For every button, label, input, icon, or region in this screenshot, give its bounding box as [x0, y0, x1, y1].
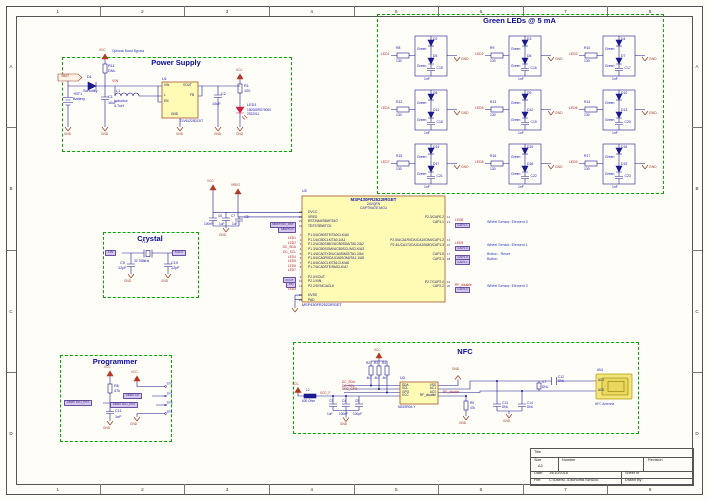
value-label: Green — [417, 119, 426, 122]
value-label: 12pF — [118, 267, 127, 271]
vcc-power-label: VCC — [104, 366, 111, 369]
pin-name: P2.3/CAP0.2 — [368, 215, 444, 219]
value-label: 600 Ohm — [302, 400, 315, 403]
revision-label: Revision — [648, 459, 663, 463]
divider — [531, 457, 693, 458]
designator: R2 — [366, 362, 370, 365]
mcu-designator: U2 — [302, 190, 307, 194]
gnd-label: GND — [649, 166, 657, 169]
pin-number: 11 — [296, 284, 305, 288]
vcc-power-label: VCC — [374, 349, 381, 352]
led-cell: LED9 R17 130 D16 Green D19 Green C23 1nF… — [569, 139, 663, 193]
mcu-pin-row: CAP2.2 20 CAP2.2 Wheel Sensor: Element 2 — [368, 284, 588, 289]
file-label: File: — [534, 479, 541, 483]
value-label: 10uF — [212, 103, 221, 107]
value-label: 130 — [396, 168, 402, 171]
value-label: 130 — [396, 114, 402, 117]
value-label: Green — [417, 173, 426, 176]
designator: D17 — [433, 163, 439, 166]
designator: C1 — [108, 96, 113, 100]
value-label: 1nF — [612, 78, 618, 81]
value-label: 130 — [490, 168, 496, 171]
pin-number: 7 — [296, 261, 305, 265]
net-label: LED2 — [475, 53, 483, 56]
designator: R1 — [244, 85, 249, 89]
pin-number: 18 — [444, 257, 453, 261]
designator: LED1 — [247, 104, 257, 108]
antenna-label: NFC Antenna — [595, 403, 614, 406]
date-label: Date: — [534, 472, 543, 476]
gnd-label: GND — [459, 422, 466, 425]
pin-name: P1.7/UCA0STE/SMCLK/A7 — [305, 265, 348, 269]
value-label: 100nF — [339, 413, 348, 416]
designator: R11 — [108, 65, 115, 69]
pin-number: 15 — [444, 243, 453, 247]
pin-comment: Wheel Sensor: Element 0 — [483, 220, 528, 224]
green-leds-title: Green LEDs @ 5 mA — [377, 17, 662, 25]
value-label: 47k — [470, 407, 475, 410]
pin-name: AC0 — [598, 389, 604, 392]
value-label: 1nF — [612, 186, 618, 189]
pin-name: DVCC — [305, 210, 317, 214]
value-label: 130 — [490, 60, 496, 63]
gnd-label: GND — [461, 58, 469, 61]
value-label: 4.7uH — [114, 105, 124, 109]
value-label: Green — [417, 156, 426, 159]
net-label: RF_disable — [443, 391, 459, 394]
gnd-label: GND — [176, 133, 183, 136]
vbat-port-label: VBAT — [61, 75, 69, 78]
designator: AN1 — [597, 369, 603, 372]
value-label: 130 — [584, 168, 590, 171]
designator: D16 — [621, 146, 627, 149]
pin-name: P1.1/UCB0CLK/TA0.1/A1 — [305, 238, 345, 242]
value-label: Green — [511, 119, 520, 122]
designator: D9 — [527, 92, 531, 95]
designator: C20 — [625, 121, 631, 124]
pin-number: 5 — [296, 252, 305, 256]
designator: D5 — [433, 55, 437, 58]
value-label: Green — [417, 48, 426, 51]
number-label: Number — [562, 459, 576, 463]
title-label: Title — [534, 451, 541, 455]
designator: D19 — [621, 163, 627, 166]
pin-number: 1 — [296, 233, 305, 237]
size-label: Size — [534, 459, 541, 463]
value-label: 4k7 — [383, 377, 388, 380]
pin-number: 17 — [444, 252, 453, 256]
net-label: LED3 — [569, 53, 577, 56]
pin-name: P2.0/XOUT — [305, 275, 325, 279]
net-label: LED1 — [381, 53, 389, 56]
pin-name: GND — [171, 113, 178, 116]
value-label: 1nF — [424, 132, 430, 135]
led-cell: LED8 R16 130 D15 Green D18 Green C22 1nF… — [475, 139, 569, 193]
vcc-power-label: VCC — [99, 49, 106, 52]
designator: D8 — [433, 92, 437, 95]
pin-name: RF_disable — [412, 394, 436, 397]
size-value: A3 — [538, 465, 543, 469]
value-label: 1nF — [518, 186, 524, 189]
value-label: 130 — [396, 60, 402, 63]
vreg-power-label: VREG — [231, 184, 240, 187]
pin-name: FB — [190, 94, 194, 97]
designator: C3 — [329, 400, 333, 403]
value-label: 1nF — [612, 132, 618, 135]
pin-name: P1.0/UCB0STE/TA0CLK/A0 — [305, 233, 349, 237]
pin-name: P1.6/UCA0CLK/TA1CLK/A6 — [305, 261, 349, 265]
power-supply-title: Power Supply — [62, 59, 290, 67]
designator: U1 — [162, 78, 167, 82]
designator: C17 — [625, 67, 631, 70]
gnd-label: GND — [64, 133, 71, 136]
pin-name: CAP2.2 — [368, 284, 444, 288]
designator: D13 — [621, 109, 627, 112]
value-label: Green — [605, 173, 614, 176]
pin-number: 2 — [296, 238, 305, 242]
designator: C21 — [437, 175, 443, 178]
value-label: Green — [511, 102, 520, 105]
led-cell: LED1 R8 130 D2 Green D5 Green C15 1nF GN… — [381, 31, 475, 85]
value-label: Green — [511, 65, 520, 68]
pin-name: VCC — [402, 394, 409, 397]
pin-name: VREG — [305, 215, 317, 219]
designator: C6 — [218, 215, 222, 218]
pin-number: 21 — [296, 210, 305, 214]
pin-name: P1.3/UCB0SOMI/UCB0SCL/MCLK/A3 — [305, 247, 364, 251]
designator: C5 — [355, 400, 359, 403]
value-label: Green — [417, 102, 426, 105]
crystal-wiring — [122, 250, 174, 279]
date-value: 19/10/2016 — [549, 472, 568, 476]
designator: R14 — [584, 101, 590, 104]
note-label: Optional Boost Bypass — [112, 50, 144, 53]
gnd-label: GND — [340, 423, 347, 426]
designator: D14 — [433, 146, 439, 149]
designator: C8 — [245, 216, 249, 219]
gnd-label: GND — [161, 280, 168, 283]
testpoint-label: TP1 — [167, 383, 173, 386]
net-label: LED9 — [569, 161, 577, 164]
designator: D6 — [527, 55, 531, 58]
pin-number: 10 — [296, 279, 305, 283]
value-label: 32.768kHz — [134, 260, 149, 263]
mcu-pin-row: 25 PAD — [250, 297, 465, 302]
designator: R3 — [374, 362, 378, 365]
designator: C16 — [531, 67, 537, 70]
pin-name: P1.4/UCA0TXD/UCA0SIMO/TA1.2/A4 — [305, 252, 364, 256]
led-cell: LED7 R15 130 D14 Green D17 Green C21 1nF… — [381, 139, 475, 193]
pin-net: CAP2.2 — [453, 277, 483, 295]
net-label: LED6 — [569, 107, 577, 110]
gnd-label: GND — [124, 280, 131, 283]
value-label: Schottky — [83, 90, 98, 94]
pin-number: 6 — [296, 256, 305, 260]
pin-number: 22 — [296, 224, 305, 228]
pin-name: P2.2/SYNC/ACLK — [305, 284, 334, 288]
pin-name: VOUT — [183, 84, 192, 87]
value-label: 100 — [244, 90, 250, 94]
pin-net: CAP1.1 — [453, 213, 483, 231]
gnd-label: GND — [555, 58, 563, 61]
value-label: 1nF — [518, 78, 524, 81]
value-label: 1nF — [424, 78, 430, 81]
pin-number: 12 — [444, 215, 453, 219]
pin-name: AC1 — [598, 379, 604, 382]
gnd-label: GND — [452, 368, 459, 371]
nfc-title: NFC — [293, 348, 637, 356]
designator: D12 — [527, 109, 533, 112]
value-label: 1nF — [518, 132, 524, 135]
value-label: Green — [605, 102, 614, 105]
designator: R5 — [470, 402, 474, 405]
pin-name: DVSS — [305, 293, 317, 297]
divider — [558, 457, 559, 471]
pin-name: CAP2.1 — [368, 257, 444, 261]
divider — [621, 471, 622, 485]
led-grid: LED1 R8 130 D2 Green D5 Green C15 1nF GN… — [381, 31, 663, 193]
net-label: LED7 — [381, 161, 389, 164]
value-label: Green — [511, 156, 520, 159]
divider — [643, 457, 644, 471]
designator: D15 — [527, 146, 533, 149]
gnd-label: GND — [461, 166, 469, 169]
mcu-right-pins: P2.3/CAP0.2 12 LED8 CAP1.1 13 CAP1.1 Whe… — [368, 215, 588, 289]
pin-number: 25 — [296, 298, 305, 302]
gnd-label: GND — [649, 112, 657, 115]
pin-name: VIN — [164, 84, 169, 87]
sheet-label: Sheet of — [625, 472, 639, 476]
pin-number: 14 — [444, 238, 453, 242]
gnd-label: GND — [219, 234, 226, 237]
pin-name: L — [164, 94, 166, 97]
value-label: 100pF — [353, 413, 362, 416]
pin-number: 23 — [296, 219, 305, 223]
pin-name: CAP1.1 — [368, 220, 444, 224]
gnd-label: GND — [236, 133, 243, 136]
pin-name: EN — [164, 100, 168, 103]
pin-name: P1.2/UCB0SIMO/UCB0SDA/TA0.2/A2 — [305, 242, 364, 246]
net-label: NFC_GPO — [342, 388, 357, 391]
pin-name: P1.5/UCA0RXD/UCA0SOMI/TA1.1/A5 — [305, 256, 364, 260]
gnd-label: GND — [503, 420, 510, 423]
designator: D11 — [433, 109, 439, 112]
designator: R15 — [396, 155, 402, 158]
part-number: M24SR04-Y — [398, 406, 415, 409]
gnd-label: GND — [649, 58, 657, 61]
value-label: 130 — [490, 114, 496, 117]
designator: D2 — [433, 38, 437, 41]
designator: C23 — [625, 175, 631, 178]
xin-port: XIN — [105, 250, 116, 256]
value-label: 100nF — [204, 223, 213, 226]
mcu-part-below: MSP430FR2522IRGET — [302, 304, 342, 308]
vcc-power-label: VCC — [292, 383, 299, 386]
net-label: VIN — [112, 80, 118, 84]
pin-comment: Button — [483, 257, 497, 261]
value-label: 4k7 — [375, 377, 380, 380]
pin-net: LED3 — [250, 277, 296, 295]
designator: R4 — [382, 362, 386, 365]
pin-number: 20 — [444, 284, 453, 288]
pin-number: 20 — [296, 215, 305, 219]
designator: L2 — [306, 389, 310, 392]
gnd-label: GND — [103, 427, 110, 430]
net-label: LED5 — [475, 107, 483, 110]
part-number: 2322011 — [247, 113, 259, 116]
designator: R10 — [584, 47, 590, 50]
designator: C18 — [437, 121, 443, 124]
gnd-label: GND — [130, 423, 137, 426]
value-label: 4.7 — [542, 381, 546, 384]
value-label: DNL — [502, 406, 508, 409]
designator: C7 — [231, 215, 235, 218]
value-label: DNL — [527, 406, 533, 409]
gnd-label: GND — [555, 166, 563, 169]
pin-number: 8 — [296, 265, 305, 269]
designator: D18 — [527, 163, 533, 166]
pin-name: RST/NMI/SBWTDIO — [305, 219, 338, 223]
value-label: 47k — [114, 390, 120, 394]
pin-name: TEST/SBWTCK — [305, 224, 331, 228]
designator: C2 — [221, 93, 226, 97]
designator: R12 — [396, 101, 402, 104]
value-label: 130 — [584, 60, 590, 63]
designator: D10 — [621, 92, 627, 95]
designator: C9 — [120, 262, 125, 266]
vcc-power-label: VCC — [207, 180, 214, 183]
testpoint-label: TP2 — [167, 393, 173, 396]
designator: R9 — [490, 47, 494, 50]
pin-number: 19 — [444, 280, 453, 284]
designator: R16 — [490, 155, 496, 158]
designator: R13 — [490, 101, 496, 104]
value-label: 1nF — [115, 416, 122, 420]
net-label: VCC_F — [320, 392, 330, 395]
pin-name: P2.4/UCA1TXD/UCA1SIMO/CAP1.3 — [368, 243, 444, 247]
led-cell: LED3 R10 130 D4 Green D7 Green C17 1nF G… — [569, 31, 663, 85]
pin-comment: Wheel Sensor: Element 1 — [483, 243, 528, 247]
testpoint-label: TP4 — [167, 411, 173, 414]
value-label: 1uF — [232, 223, 238, 226]
gnd-label: GND — [555, 112, 563, 115]
led-cell: LED2 R9 130 D3 Green D6 Green C16 1nF GN… — [475, 31, 569, 85]
vcc-power-label: VCC — [131, 371, 138, 374]
pin-net: CAP2.1 — [453, 250, 483, 268]
designator: Y1 — [141, 241, 146, 245]
pin-name: CAP1.0 — [368, 252, 444, 256]
designator: C10 — [171, 262, 178, 266]
led-cell: LED4 R12 130 D8 Green D11 Green C18 1nF … — [381, 85, 475, 139]
gnd-label: GND — [214, 133, 221, 136]
vcc-power-label: VCC — [236, 69, 243, 72]
value-label: Green — [605, 119, 614, 122]
value-label: Green — [511, 48, 520, 51]
designator: +BT1 — [73, 93, 82, 97]
designator: U3 — [400, 377, 405, 381]
value-label: Green — [417, 65, 426, 68]
designator: C15 — [437, 67, 443, 70]
value-label: Green — [511, 173, 520, 176]
gnd-label: GND — [101, 133, 108, 136]
title-block: Title Size A3 Number Revision Date: 19/1… — [530, 448, 694, 486]
programmer-title: Programmer — [60, 358, 170, 366]
led-cell: LED5 R13 130 D9 Green D12 Green C19 1nF … — [475, 85, 569, 139]
designator: L1 — [116, 90, 120, 94]
crystal-title: Crystal — [103, 235, 197, 243]
part-number: TLV61225DCKT — [180, 120, 203, 123]
pin-number: 13 — [444, 220, 453, 224]
designator: C19 — [531, 121, 537, 124]
pin-name: P2.7/CAP2.0 — [368, 280, 444, 284]
designator: C22 — [531, 175, 537, 178]
sbwtdio-rst-port: SBWTDIO_RST — [64, 400, 92, 406]
drawn-by-label: Drawn By: — [625, 479, 643, 483]
value-label: DNL — [108, 70, 116, 74]
schematic-sheet: 12345678 12345678 ABCD ABCD — [0, 0, 708, 500]
designator: R17 — [584, 155, 590, 158]
xout-port: XOUT — [172, 250, 186, 256]
designator: C4 — [342, 400, 346, 403]
value-label: 1uF — [219, 223, 225, 226]
value-label: Green — [605, 156, 614, 159]
designator: D7 — [621, 55, 625, 58]
designator: C11 — [115, 410, 122, 414]
value-label: Green — [605, 65, 614, 68]
designator: D4 — [621, 38, 625, 41]
value-label: DNL — [558, 380, 564, 383]
gnd-label: GND — [461, 112, 469, 115]
value-label: Green — [605, 48, 614, 51]
value-label: Battery — [73, 98, 85, 102]
pin-name: PAD — [305, 298, 315, 302]
net-label: LED4 — [381, 107, 389, 110]
pin-number: 9 — [296, 275, 305, 279]
designator: D3 — [527, 38, 531, 41]
value-label: 12pF — [171, 267, 180, 271]
value-label: Inductor — [114, 100, 128, 104]
value-label: 1nF — [424, 186, 430, 189]
pin-number: 3 — [296, 242, 305, 246]
value-label: 1uF — [327, 413, 333, 416]
value-label: 4k7 — [367, 377, 372, 380]
value-label: 130 — [584, 114, 590, 117]
sbwtck-port: SBWTCK — [123, 393, 142, 399]
sbwtdio-rst-port: SBWTDIO_RST — [110, 402, 138, 408]
designator: R8 — [396, 47, 400, 50]
net-label: LED8 — [475, 161, 483, 164]
pin-name: P2.1/XIN — [305, 279, 321, 283]
pin-number: 4 — [296, 247, 305, 251]
file-value: C:\Users\..\Dschunta.SchDoc — [549, 479, 598, 483]
pin-name: P2.5/UCA1RXD/UCA1SOMI/CAP1.2 — [368, 238, 444, 242]
pin-comment: Button - Reset — [483, 252, 510, 256]
led-cell: LED6 R14 130 D10 Green D13 Green C20 1nF… — [569, 85, 663, 139]
designator: D1 — [87, 76, 92, 80]
pin-number: 19 — [296, 293, 305, 297]
value-label: DNL — [542, 386, 548, 389]
pin-comment: Wheel Sensor: Element 2 — [483, 284, 528, 288]
testpoint-label: TP3 — [167, 402, 173, 405]
